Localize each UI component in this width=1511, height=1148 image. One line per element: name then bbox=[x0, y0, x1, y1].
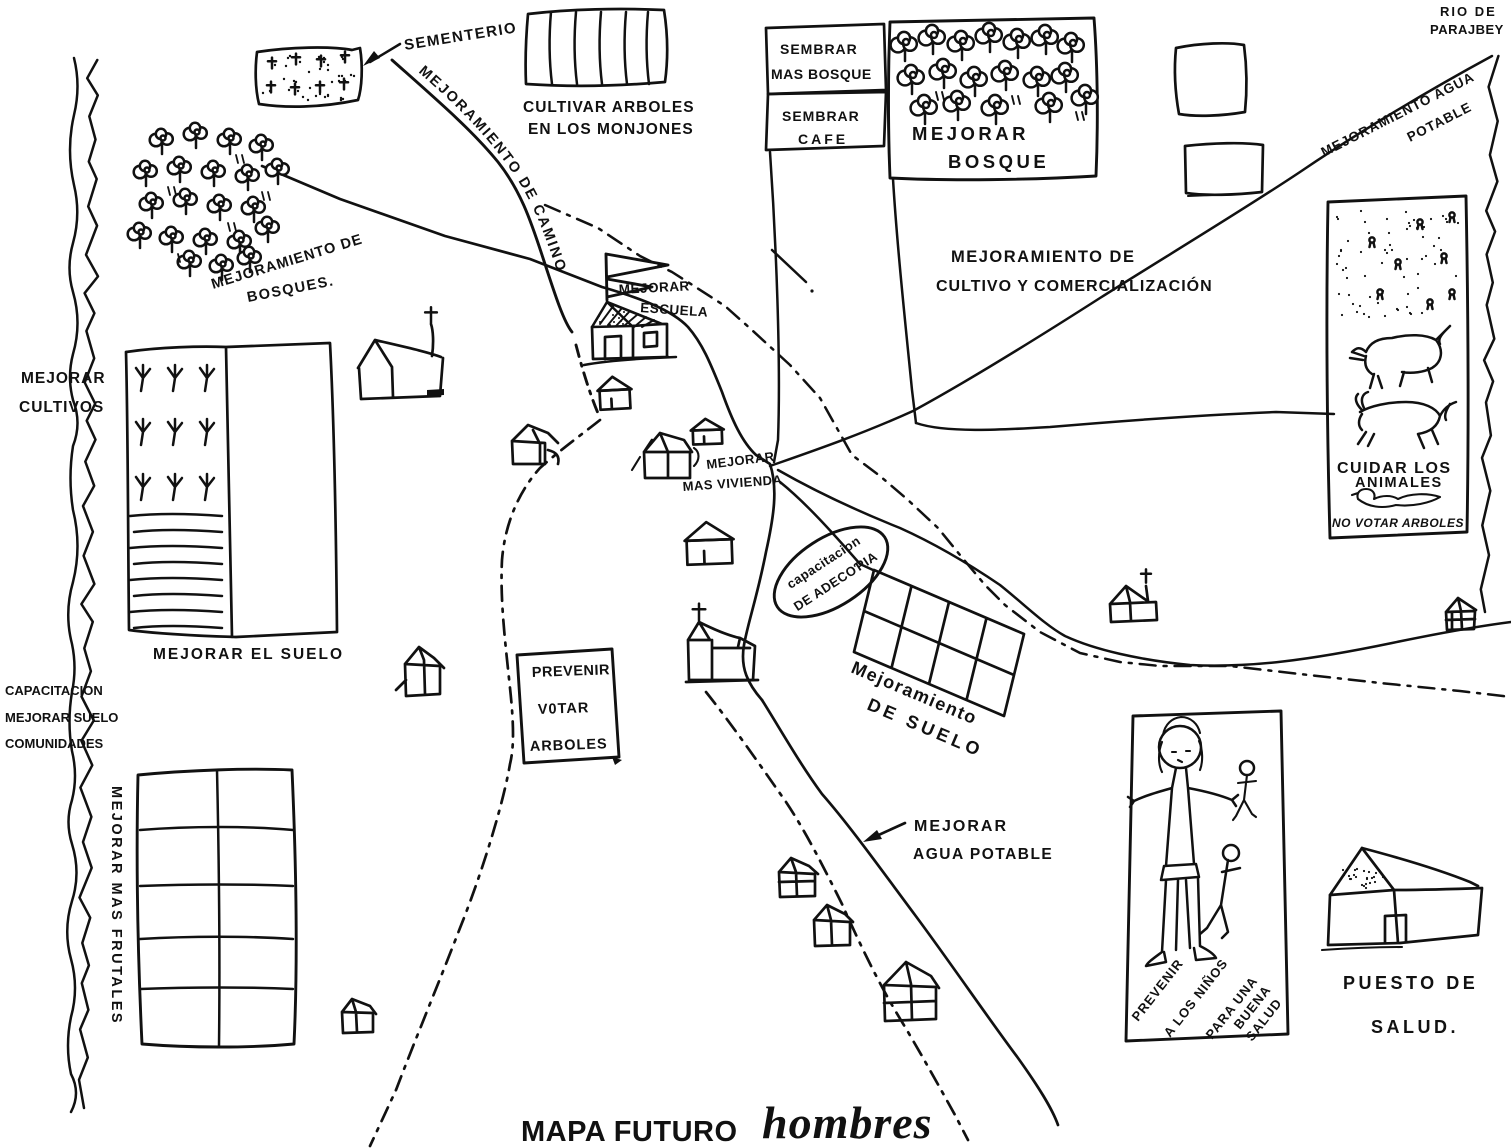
svg-text:PARAJBEY: PARAJBEY bbox=[1430, 22, 1504, 37]
svg-text:PREVENIR: PREVENIR bbox=[532, 662, 611, 681]
svg-text:CAPACITACION: CAPACITACION bbox=[5, 683, 103, 698]
svg-text:COMUNIDADES: COMUNIDADES bbox=[5, 736, 104, 751]
svg-text:BOSQUE: BOSQUE bbox=[948, 151, 1049, 172]
svg-text:MEJORAR: MEJORAR bbox=[912, 123, 1029, 144]
svg-text:MEJORAR: MEJORAR bbox=[914, 818, 1008, 835]
svg-text:MEJORAMIENTO DE: MEJORAMIENTO DE bbox=[951, 248, 1135, 266]
svg-text:SALUD.: SALUD. bbox=[1371, 1017, 1459, 1037]
svg-text:NO VOTAR ARBOLES: NO VOTAR ARBOLES bbox=[1332, 516, 1464, 530]
svg-text:EN LOS MONJONES: EN LOS MONJONES bbox=[528, 121, 694, 138]
svg-text:RIO DE: RIO DE bbox=[1440, 4, 1497, 19]
svg-text:MAPA FUTURO: MAPA FUTURO bbox=[521, 1116, 738, 1148]
svg-text:SEMBRAR: SEMBRAR bbox=[782, 108, 860, 124]
svg-text:V0TAR: V0TAR bbox=[538, 700, 590, 718]
svg-text:MAS BOSQUE: MAS BOSQUE bbox=[771, 66, 872, 82]
svg-text:hombres: hombres bbox=[762, 1097, 933, 1148]
svg-text:MEJORAR: MEJORAR bbox=[21, 370, 106, 387]
svg-text:CULTIVO Y COMERCIALIZACIÓN: CULTIVO Y COMERCIALIZACIÓN bbox=[936, 276, 1213, 295]
svg-text:AGUA POTABLE: AGUA POTABLE bbox=[913, 846, 1053, 863]
svg-text:CULTIVOS: CULTIVOS bbox=[19, 399, 104, 416]
svg-text:PUESTO DE: PUESTO DE bbox=[1343, 973, 1478, 993]
svg-text:MEJORAR EL SUELO: MEJORAR EL SUELO bbox=[153, 646, 344, 663]
svg-text:MEJORAR MAS FRUTALES: MEJORAR MAS FRUTALES bbox=[108, 786, 124, 1025]
svg-text:ARBOLES: ARBOLES bbox=[530, 736, 608, 755]
svg-text:CAFE: CAFE bbox=[798, 131, 848, 147]
svg-text:MEJORAR SUELO: MEJORAR SUELO bbox=[5, 710, 118, 725]
svg-text:CULTIVAR ARBOLES: CULTIVAR ARBOLES bbox=[523, 99, 695, 116]
svg-text:SEMBRAR: SEMBRAR bbox=[780, 41, 858, 57]
